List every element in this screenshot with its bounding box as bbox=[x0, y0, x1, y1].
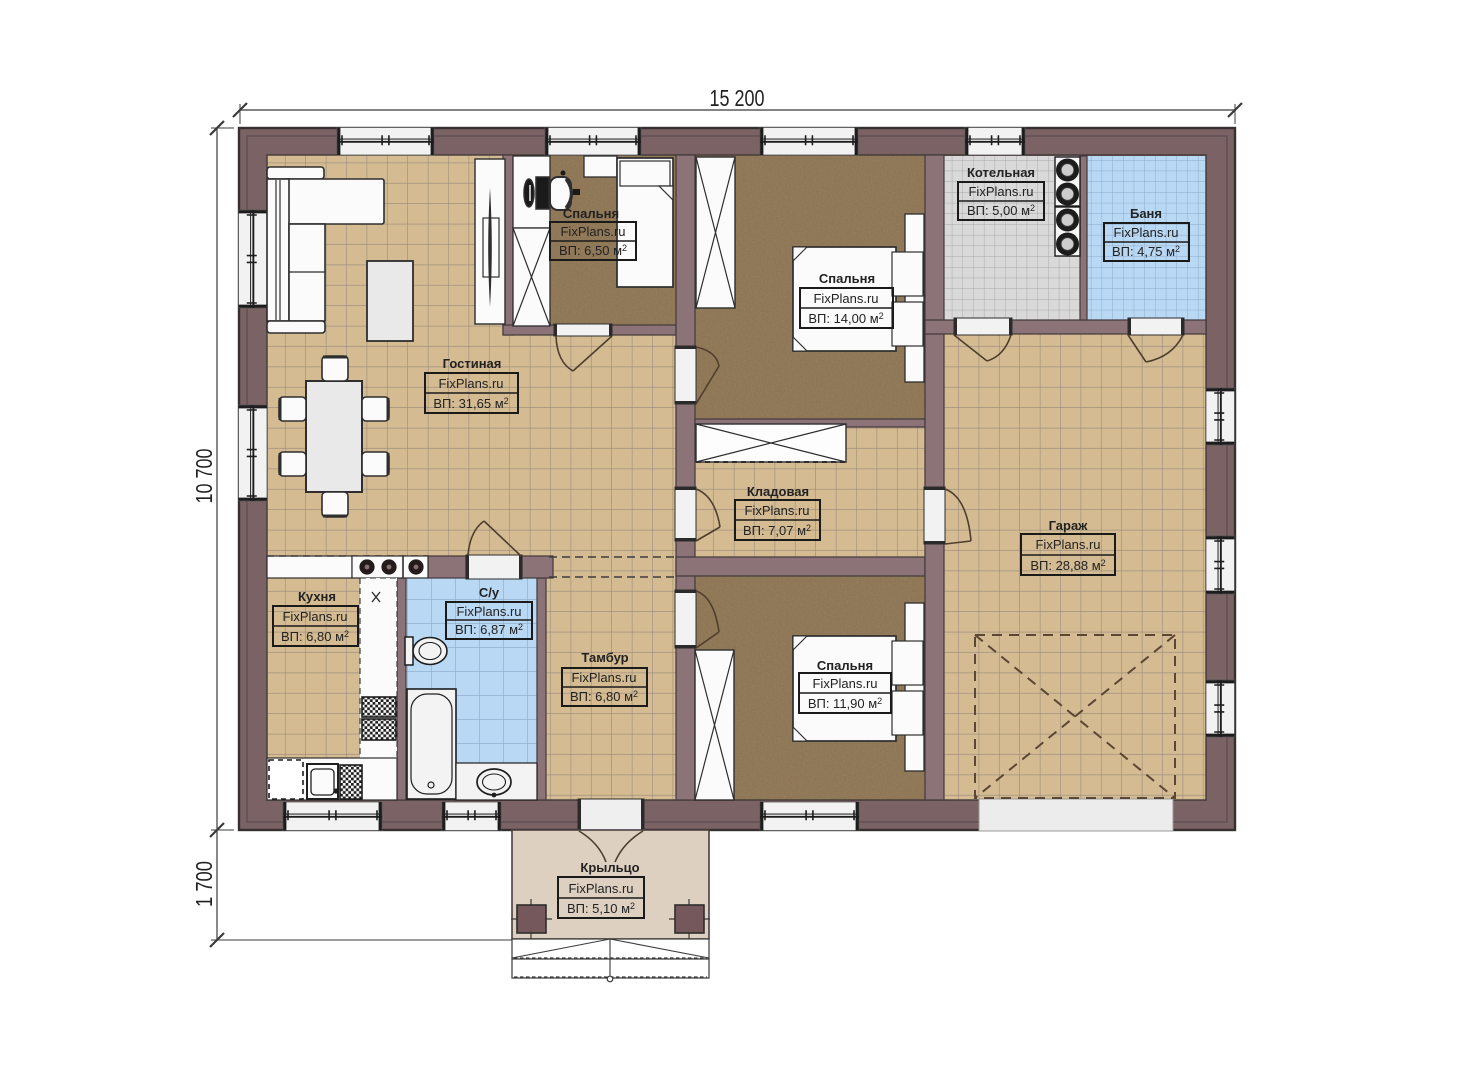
svg-text:ВП: 6,80 м2: ВП: 6,80 м2 bbox=[281, 629, 349, 644]
svg-text:ВП: 6,50 м2: ВП: 6,50 м2 bbox=[559, 243, 627, 258]
svg-text:1 700: 1 700 bbox=[191, 861, 217, 907]
svg-text:Тамбур: Тамбур bbox=[581, 650, 628, 665]
svg-text:Спальня: Спальня bbox=[563, 206, 619, 221]
svg-text:FixPlans.ru: FixPlans.ru bbox=[571, 670, 636, 685]
svg-text:FixPlans.ru: FixPlans.ru bbox=[456, 604, 521, 619]
svg-text:Крыльцо: Крыльцо bbox=[580, 860, 639, 875]
svg-text:FixPlans.ru: FixPlans.ru bbox=[568, 881, 633, 896]
svg-text:ВП: 6,87 м2: ВП: 6,87 м2 bbox=[455, 622, 523, 637]
svg-text:ВП: 28,88 м2: ВП: 28,88 м2 bbox=[1030, 558, 1105, 573]
svg-text:Кухня: Кухня bbox=[298, 589, 336, 604]
svg-text:ВП: 5,00 м2: ВП: 5,00 м2 bbox=[967, 203, 1035, 218]
svg-text:FixPlans.ru: FixPlans.ru bbox=[813, 291, 878, 306]
svg-text:Котельная: Котельная bbox=[967, 165, 1035, 180]
svg-text:Баня: Баня bbox=[1130, 206, 1162, 221]
svg-text:ВП: 6,80 м2: ВП: 6,80 м2 bbox=[570, 689, 638, 704]
svg-text:ВП: 7,07 м2: ВП: 7,07 м2 bbox=[743, 523, 811, 538]
svg-text:FixPlans.ru: FixPlans.ru bbox=[282, 609, 347, 624]
svg-text:ВП: 14,00 м2: ВП: 14,00 м2 bbox=[808, 311, 883, 326]
svg-text:ВП: 5,10 м2: ВП: 5,10 м2 bbox=[567, 901, 635, 916]
svg-text:FixPlans.ru: FixPlans.ru bbox=[560, 224, 625, 239]
svg-text:ВП: 11,90 м2: ВП: 11,90 м2 bbox=[808, 696, 882, 711]
svg-text:FixPlans.ru: FixPlans.ru bbox=[744, 503, 809, 518]
svg-text:FixPlans.ru: FixPlans.ru bbox=[1113, 225, 1178, 240]
svg-text:FixPlans.ru: FixPlans.ru bbox=[438, 376, 503, 391]
svg-text:10 700: 10 700 bbox=[191, 449, 217, 504]
svg-text:Спальня: Спальня bbox=[819, 271, 875, 286]
svg-text:Кладовая: Кладовая bbox=[747, 484, 809, 499]
svg-text:Гостиная: Гостиная bbox=[443, 356, 502, 371]
svg-text:FixPlans.ru: FixPlans.ru bbox=[968, 184, 1033, 199]
svg-text:Гараж: Гараж bbox=[1049, 518, 1089, 533]
svg-text:FixPlans.ru: FixPlans.ru bbox=[1035, 537, 1100, 552]
svg-text:FixPlans.ru: FixPlans.ru bbox=[812, 676, 877, 691]
svg-text:15 200: 15 200 bbox=[710, 85, 765, 111]
svg-text:ВП: 31,65 м2: ВП: 31,65 м2 bbox=[433, 396, 508, 411]
svg-text:С/у: С/у bbox=[479, 585, 500, 600]
svg-text:ВП: 4,75 м2: ВП: 4,75 м2 bbox=[1112, 244, 1180, 259]
svg-text:Спальня: Спальня bbox=[817, 658, 873, 673]
